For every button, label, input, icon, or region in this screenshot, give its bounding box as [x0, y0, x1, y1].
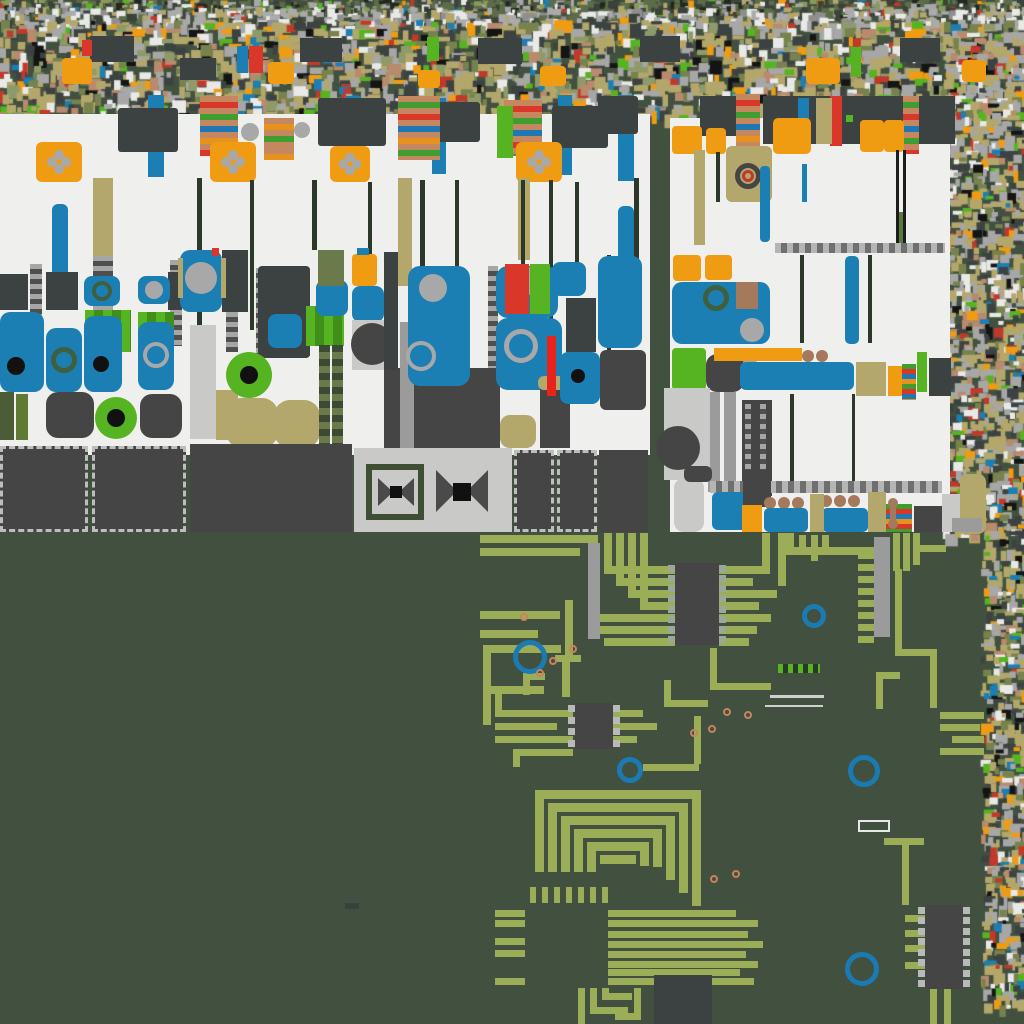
ic-pin: [719, 595, 726, 602]
trace: [643, 764, 699, 771]
trace: [913, 533, 920, 565]
trace: [587, 842, 596, 872]
ic-pin: [963, 949, 970, 956]
ic-pin: [568, 705, 575, 712]
trace: [944, 989, 951, 1024]
trace: [574, 829, 662, 838]
orange-trimmer: [36, 142, 82, 182]
trace: [884, 838, 924, 845]
gray-standoff: [588, 543, 600, 639]
trace: [920, 545, 946, 552]
orange-component: [884, 120, 904, 152]
capacitor-blue: [0, 312, 44, 392]
trace: [578, 988, 585, 1024]
trace: [495, 736, 573, 743]
ic-pin: [918, 917, 925, 924]
wire-lead: [852, 394, 855, 488]
oscillator-mark: [436, 468, 488, 516]
green-cap: [672, 348, 706, 390]
cap-vent: [240, 366, 258, 384]
large-ic: [190, 444, 352, 532]
green-cap-small: [497, 106, 513, 158]
smd-chip: [90, 36, 134, 62]
blue-bar: [845, 256, 859, 344]
trace: [902, 845, 909, 905]
trace: [608, 920, 758, 927]
trace: [480, 535, 598, 543]
trimmer-dot: [221, 157, 231, 167]
orange-trimmer: [516, 142, 562, 182]
pad: [802, 350, 814, 362]
ic-chip-top: [598, 96, 638, 134]
pad: [888, 519, 898, 529]
pad-row: [775, 243, 945, 253]
orange-component: [806, 58, 840, 84]
trace: [495, 688, 502, 712]
ic-pin: [719, 636, 726, 643]
red-cap-small: [82, 40, 92, 56]
green-cap-small: [427, 37, 439, 61]
green-cap-small: [851, 47, 861, 77]
ic-pin: [668, 575, 675, 582]
pad-mark: [710, 875, 718, 883]
tan-bar: [810, 494, 824, 532]
gray-capsule: [674, 478, 704, 532]
cap-sleeve: [178, 258, 183, 298]
ic-dashed: [557, 450, 597, 532]
trace: [822, 535, 829, 549]
ic-pin: [613, 705, 620, 712]
ic-pin: [918, 938, 925, 945]
resistor-banded: [398, 96, 440, 160]
dark-cap: [684, 466, 712, 482]
cap-ring: [92, 281, 112, 301]
red-lead: [547, 336, 556, 396]
orange-trimmer: [210, 142, 256, 182]
trace: [694, 716, 701, 764]
trace: [602, 993, 632, 1000]
cap-top: [145, 281, 163, 299]
pcb-board: [0, 0, 1024, 1024]
orange-component: [962, 60, 986, 82]
ic-pin: [668, 585, 675, 592]
wire-lead: [903, 150, 906, 245]
ic-pin: [668, 626, 675, 633]
trace: [666, 816, 675, 880]
trimmer-dot: [527, 157, 537, 167]
trace: [940, 748, 984, 755]
gray-bar: [190, 325, 216, 439]
tan-bar: [694, 150, 705, 245]
trace: [535, 790, 701, 799]
solder-smudge: [345, 903, 359, 909]
orange-component: [742, 505, 762, 532]
trace: [561, 816, 570, 872]
resistor-banded: [902, 364, 916, 400]
silk-line: [770, 695, 824, 698]
pad-mark: [723, 708, 731, 716]
blue-cap-small: [237, 46, 248, 73]
blue-tip: [357, 248, 369, 255]
trace: [600, 855, 636, 864]
cap-top: [419, 274, 447, 302]
trace: [495, 978, 525, 985]
trace: [480, 548, 580, 556]
ic-pin: [918, 907, 925, 914]
trace: [590, 887, 596, 903]
trimmer-dot: [352, 159, 361, 168]
trace: [858, 600, 874, 607]
cap-ring: [51, 347, 77, 373]
bowtie-center: [390, 486, 402, 498]
cap-vent: [7, 357, 25, 375]
trace: [495, 920, 525, 927]
green-lead: [899, 212, 903, 244]
ic-pin: [918, 949, 925, 956]
cap-ring: [703, 285, 729, 311]
gray-bar: [724, 392, 736, 492]
smd-chip: [640, 36, 680, 62]
via: [845, 952, 879, 986]
wire-lead: [790, 394, 794, 488]
pad-mark: [732, 870, 740, 878]
ic-chip-top: [118, 108, 178, 152]
ic-pin: [668, 606, 675, 613]
ic-pin: [963, 928, 970, 935]
capacitor-blue: [352, 286, 384, 322]
wire-lead: [575, 182, 579, 266]
ic-pin: [719, 626, 726, 633]
trimmer-dot: [47, 157, 57, 167]
ic-chip-top: [46, 272, 78, 310]
trace: [513, 749, 573, 756]
ic-pin: [668, 565, 675, 572]
silk-bracket: [858, 820, 890, 832]
trace: [940, 724, 980, 731]
trace: [876, 672, 900, 679]
smd-chip: [300, 38, 342, 62]
trace: [858, 624, 874, 631]
trace: [495, 938, 525, 945]
trace: [513, 749, 520, 767]
ic-block: [599, 450, 648, 532]
solder-dot: [241, 123, 259, 141]
soic-ic: [675, 563, 719, 645]
tan-cap: [856, 362, 886, 396]
trace: [640, 842, 649, 866]
trace: [634, 988, 641, 1015]
trace: [592, 626, 675, 634]
trace: [608, 951, 746, 958]
trace: [664, 680, 671, 702]
pad: [834, 495, 846, 507]
trace: [930, 656, 937, 708]
orange-trimmer: [330, 146, 370, 182]
orange-component: [540, 66, 566, 86]
oscillator-mark: [378, 476, 414, 508]
orange-component: [773, 118, 811, 154]
trimmer-dot: [339, 159, 348, 168]
ic-pin: [963, 938, 970, 945]
resistor-banded: [736, 94, 760, 154]
ic-chip-top: [566, 298, 596, 352]
trace: [876, 679, 883, 709]
red-cap: [505, 264, 529, 314]
gray-pad: [952, 518, 982, 532]
ic-pin: [668, 616, 675, 623]
trace: [811, 535, 818, 561]
wire-lead: [800, 255, 804, 343]
ic-pin: [963, 980, 970, 987]
trace: [578, 887, 584, 903]
gray-standoff: [874, 537, 890, 637]
pad-mark: [690, 729, 698, 737]
inductor-ring: [742, 170, 754, 182]
pad-mark: [569, 645, 577, 653]
ic-pin: [963, 917, 970, 924]
ic-pin: [963, 907, 970, 914]
cap-ring: [406, 341, 436, 371]
polarity-mark: [212, 248, 219, 256]
blue-bar: [760, 166, 770, 242]
trace: [653, 829, 662, 867]
resistor-banded: [264, 118, 294, 160]
ic-chip-top: [0, 274, 28, 310]
green-cap-small: [917, 352, 927, 392]
trace: [600, 614, 675, 622]
trace: [858, 564, 874, 571]
dark-column: [384, 252, 398, 370]
trace: [930, 989, 937, 1024]
trace: [562, 655, 570, 697]
trace: [858, 588, 874, 595]
ic-dashed: [514, 450, 554, 532]
ic-pin: [963, 959, 970, 966]
orange-component: [418, 70, 440, 88]
soic-ic: [575, 703, 613, 749]
green-dot: [846, 115, 853, 122]
trace: [710, 648, 717, 690]
trace: [858, 576, 874, 583]
tan-blob: [274, 400, 320, 448]
large-ic-dashed: [0, 446, 88, 532]
led-array: [778, 664, 820, 673]
trace: [799, 535, 806, 549]
ic-chip-top: [318, 98, 386, 146]
trimmer-dot: [541, 157, 551, 167]
trace: [604, 638, 675, 646]
solder-dot: [294, 122, 310, 138]
trace: [895, 649, 937, 656]
dark-pleated-bar: [332, 345, 343, 447]
trace: [535, 790, 544, 872]
brown-component: [736, 282, 758, 309]
ic-pin: [668, 595, 675, 602]
trace: [903, 533, 910, 571]
capacitor-blue: [84, 316, 122, 392]
pad-mark: [536, 669, 544, 677]
ic-pin: [613, 717, 620, 724]
trace: [692, 790, 701, 906]
trace: [495, 950, 525, 957]
orange-component: [888, 366, 902, 396]
trace: [615, 1013, 641, 1020]
ic-chip-top: [600, 350, 646, 410]
trace: [483, 645, 491, 725]
resistor-banded: [903, 96, 919, 154]
ic-pin: [568, 740, 575, 747]
wire-lead: [250, 180, 254, 330]
pad-mark: [520, 613, 528, 621]
green-cap: [530, 264, 550, 314]
trace: [495, 723, 557, 730]
capacitor-blue: [764, 508, 808, 532]
trace: [523, 673, 530, 695]
cap-vent: [107, 409, 125, 427]
trace: [566, 887, 572, 903]
trace: [762, 533, 770, 574]
orange-component: [705, 255, 732, 280]
trace: [608, 931, 748, 938]
ic-pin: [719, 616, 726, 623]
pad-mark: [549, 657, 557, 665]
ic-chip-top: [914, 506, 942, 532]
capacitor-blue: [268, 314, 302, 348]
trace: [608, 910, 736, 917]
trace: [495, 910, 525, 917]
via: [617, 757, 643, 783]
tan-bar: [816, 98, 832, 144]
blue-bar-horizontal: [740, 362, 854, 390]
smd-chip: [180, 58, 216, 80]
olive-block: [318, 250, 344, 286]
ic-pin: [918, 928, 925, 935]
wire-lead: [868, 255, 872, 343]
ic-pin: [719, 565, 726, 572]
large-ic-dashed: [92, 446, 186, 532]
orange-component: [706, 128, 726, 154]
via: [802, 604, 826, 628]
capacitor-blue: [552, 262, 586, 296]
olive-bar: [16, 394, 28, 440]
ic-pin: [963, 970, 970, 977]
trimmer-dot: [61, 157, 71, 167]
smd-chip: [900, 38, 940, 62]
blue-lead: [802, 164, 807, 202]
trimmer-dot: [235, 157, 245, 167]
orange-component: [860, 120, 884, 152]
wire-lead: [455, 180, 459, 268]
cap-sleeve: [221, 258, 226, 298]
trace: [719, 614, 771, 622]
ic-pin: [719, 575, 726, 582]
trace: [542, 887, 548, 903]
trace: [858, 552, 874, 559]
orange-strip: [714, 348, 802, 361]
bowtie-center: [453, 483, 471, 501]
orange-component: [62, 58, 92, 84]
trace: [858, 612, 874, 619]
cap-ring: [504, 329, 538, 363]
trace: [548, 803, 688, 812]
trace: [608, 961, 758, 968]
ic-pin: [719, 606, 726, 613]
olive-bar: [0, 392, 14, 440]
dark-cap-top: [656, 426, 700, 470]
dark-block: [654, 975, 712, 1024]
trace: [858, 636, 874, 643]
pad-mark: [744, 711, 752, 719]
ic-pin: [719, 585, 726, 592]
trace: [952, 736, 984, 743]
ic-octagon: [140, 394, 182, 438]
trace: [679, 803, 688, 893]
trace: [561, 816, 675, 825]
pad: [888, 498, 898, 508]
ic-pin: [668, 636, 675, 643]
tan-bar: [868, 492, 886, 532]
silk-line: [765, 705, 823, 707]
capacitor-blue: [598, 256, 642, 348]
soic-ic: [925, 905, 963, 989]
trace: [719, 590, 777, 598]
trace: [940, 712, 984, 719]
capacitor-blue: [822, 508, 868, 532]
cap-vent: [571, 369, 585, 383]
trace: [548, 803, 557, 872]
trace: [495, 710, 573, 717]
wire-lead: [312, 180, 317, 250]
cap-vent: [93, 356, 109, 372]
trace: [574, 829, 583, 872]
pad: [848, 495, 860, 507]
ic-pin: [918, 980, 925, 987]
via: [848, 755, 880, 787]
smd-chip: [478, 38, 522, 64]
trace: [480, 630, 538, 638]
trace: [895, 569, 902, 651]
ic-pin: [918, 959, 925, 966]
dark-pleated-bar: [319, 345, 330, 447]
cap-top: [185, 262, 217, 294]
trace: [602, 887, 608, 903]
wire-lead: [716, 152, 720, 202]
ic-pin: [918, 970, 925, 977]
trace: [604, 566, 675, 574]
ic-pin: [568, 728, 575, 735]
orange-component: [673, 255, 701, 281]
trace: [530, 887, 536, 903]
tan-blob: [226, 398, 278, 448]
trace: [628, 533, 636, 597]
trace: [893, 533, 900, 571]
trace: [554, 887, 560, 903]
red-cap-small: [249, 46, 263, 73]
ic-pin: [568, 717, 575, 724]
trace: [608, 941, 763, 948]
ic-octagon: [46, 392, 94, 438]
orange-component: [352, 254, 377, 286]
orange-component: [268, 62, 294, 84]
trace: [717, 683, 771, 690]
ic-chip-top: [929, 358, 951, 396]
cap-ring: [143, 342, 169, 368]
trace: [778, 533, 786, 586]
ic-pin: [613, 740, 620, 747]
pad: [816, 350, 828, 362]
pad-mark: [708, 725, 716, 733]
ic-pin: [613, 728, 620, 735]
